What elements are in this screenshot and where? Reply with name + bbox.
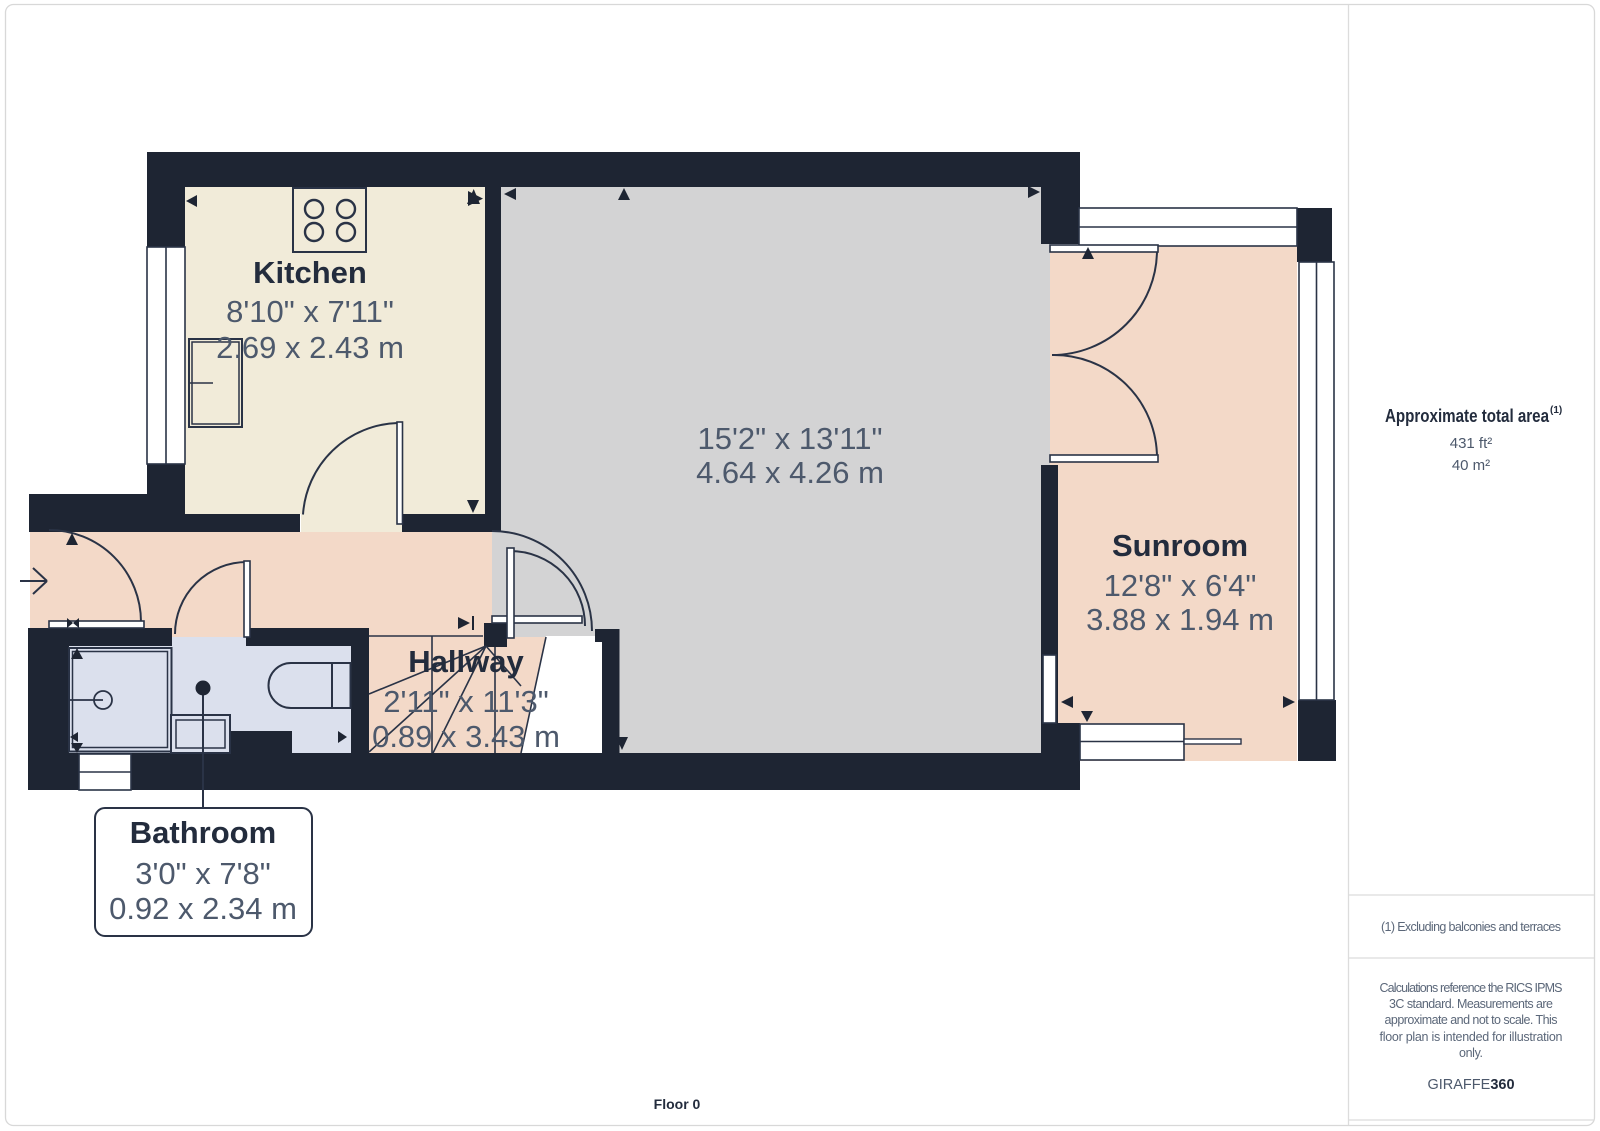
svg-text:8'10" x 7'11": 8'10" x 7'11" bbox=[226, 294, 394, 329]
svg-text:431 ft²: 431 ft² bbox=[1450, 435, 1493, 452]
svg-text:approximate and not to scale.: approximate and not to scale. This bbox=[1385, 1013, 1558, 1027]
svg-text:3C standard. Measurements are: 3C standard. Measurements are bbox=[1389, 997, 1553, 1011]
svg-text:floor plan is intended for ill: floor plan is intended for illustration bbox=[1380, 1030, 1563, 1044]
svg-text:only.: only. bbox=[1459, 1046, 1483, 1060]
svg-text:3'0" x 7'8": 3'0" x 7'8" bbox=[135, 856, 271, 891]
svg-text:2'11" x 11'3": 2'11" x 11'3" bbox=[383, 684, 548, 719]
svg-text:(1): (1) bbox=[1550, 405, 1562, 416]
svg-text:Floor 0: Floor 0 bbox=[654, 1096, 701, 1112]
svg-text:15'2" x 13'11": 15'2" x 13'11" bbox=[698, 421, 883, 456]
svg-text:3.88 x 1.94 m: 3.88 x 1.94 m bbox=[1086, 602, 1274, 637]
svg-text:Hallway: Hallway bbox=[408, 644, 524, 679]
svg-text:2.69 x 2.43 m: 2.69 x 2.43 m bbox=[216, 330, 404, 365]
svg-text:Approximate total area: Approximate total area bbox=[1385, 406, 1550, 426]
svg-text:Sunroom: Sunroom bbox=[1112, 528, 1248, 563]
svg-text:Bathroom: Bathroom bbox=[130, 815, 276, 850]
svg-text:4.64 x 4.26 m: 4.64 x 4.26 m bbox=[696, 455, 884, 490]
svg-text:12'8" x 6'4": 12'8" x 6'4" bbox=[1104, 568, 1257, 603]
svg-text:40 m²: 40 m² bbox=[1452, 457, 1490, 474]
svg-text:0.89 x 3.43 m: 0.89 x 3.43 m bbox=[372, 719, 560, 754]
svg-text:Calculations reference the RIC: Calculations reference the RICS IPMS bbox=[1380, 981, 1563, 995]
svg-text:Kitchen: Kitchen bbox=[253, 255, 367, 290]
svg-text:0.92 x 2.34 m: 0.92 x 2.34 m bbox=[109, 891, 297, 926]
svg-text:(1) Excluding balconies and te: (1) Excluding balconies and terraces bbox=[1381, 920, 1561, 934]
svg-text:GIRAFFE360: GIRAFFE360 bbox=[1427, 1077, 1514, 1093]
